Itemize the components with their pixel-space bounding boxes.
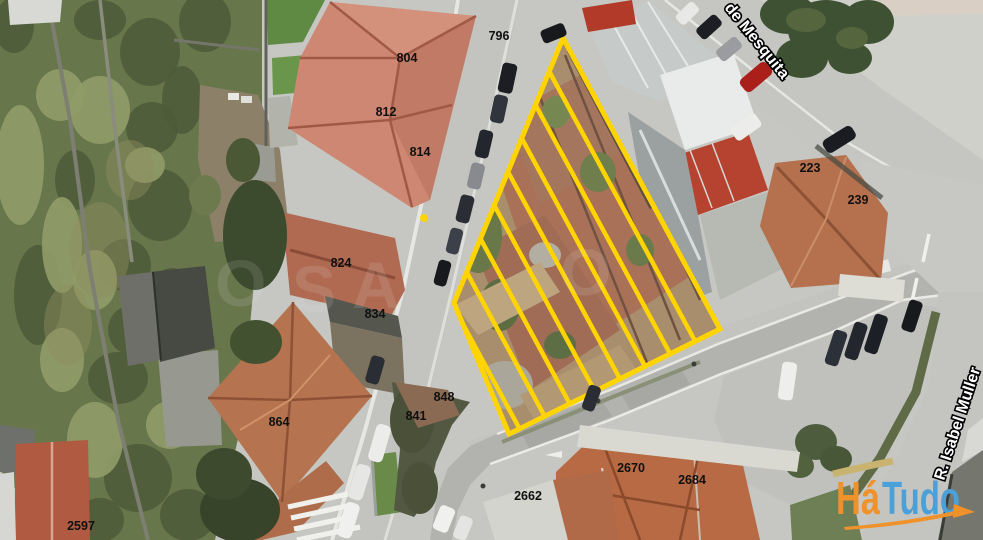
svg-text:O: O — [215, 246, 266, 320]
svg-text:223: 223 — [800, 161, 821, 175]
svg-text:848: 848 — [434, 390, 455, 404]
svg-text:804: 804 — [397, 51, 418, 65]
svg-text:Há: Há — [836, 472, 880, 524]
svg-text:824: 824 — [331, 256, 352, 270]
svg-text:S: S — [292, 252, 336, 326]
svg-text:796: 796 — [489, 29, 510, 43]
svg-text:2597: 2597 — [67, 519, 95, 533]
svg-text:864: 864 — [269, 415, 290, 429]
svg-text:O: O — [560, 235, 611, 309]
svg-text:2662: 2662 — [514, 489, 542, 503]
svg-text:2670: 2670 — [617, 461, 645, 475]
svg-text:841: 841 — [406, 409, 427, 423]
svg-text:2684: 2684 — [678, 473, 706, 487]
svg-text:812: 812 — [376, 105, 397, 119]
svg-text:834: 834 — [365, 307, 386, 321]
svg-text:814: 814 — [410, 145, 431, 159]
svg-text:239: 239 — [848, 193, 869, 207]
